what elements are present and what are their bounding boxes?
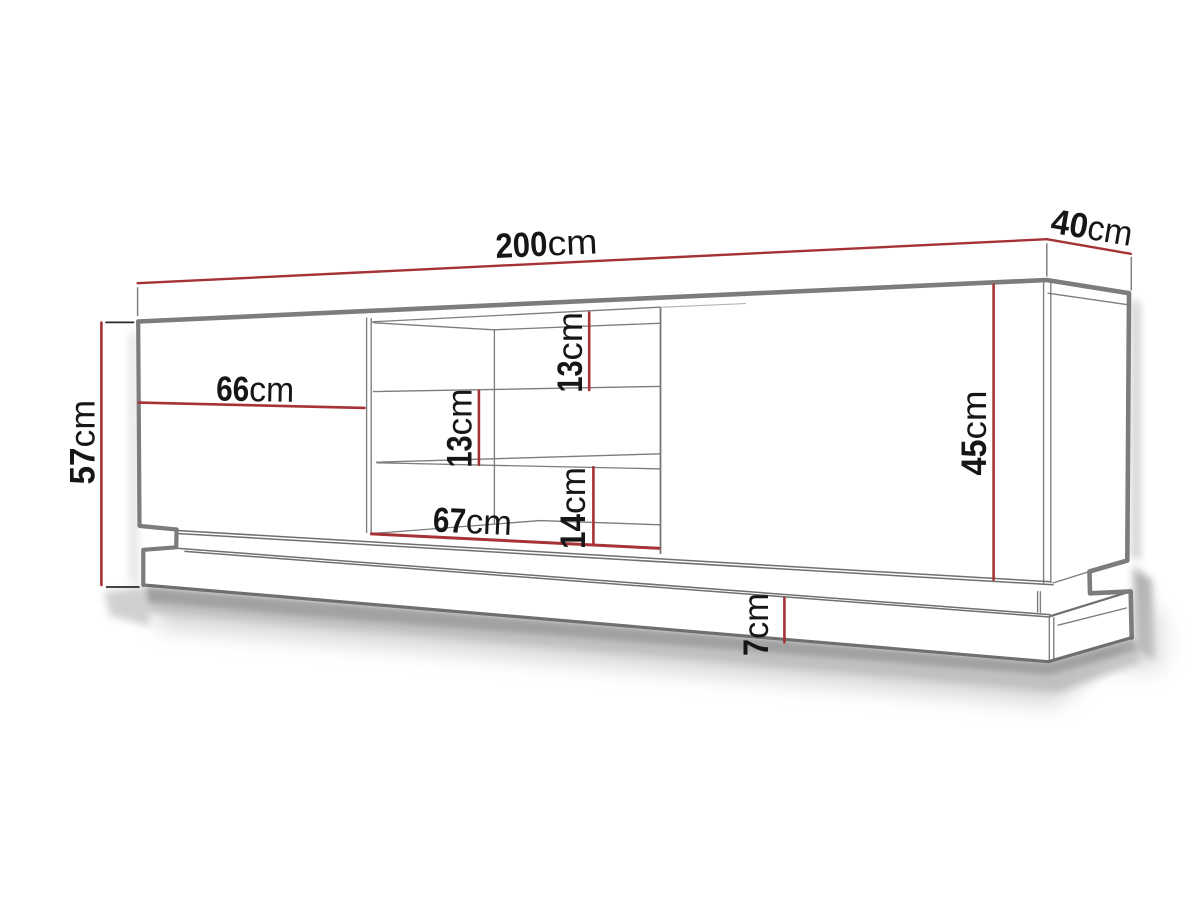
svg-text:200cm: 200cm — [495, 222, 599, 266]
svg-text:13cm: 13cm — [551, 312, 590, 393]
svg-text:67cm: 67cm — [432, 501, 513, 543]
svg-text:14cm: 14cm — [554, 467, 593, 549]
svg-text:7cm: 7cm — [737, 593, 776, 656]
svg-text:13cm: 13cm — [440, 389, 479, 468]
svg-text:45cm: 45cm — [955, 391, 994, 476]
svg-text:57cm: 57cm — [64, 400, 103, 485]
svg-text:66cm: 66cm — [216, 370, 295, 410]
